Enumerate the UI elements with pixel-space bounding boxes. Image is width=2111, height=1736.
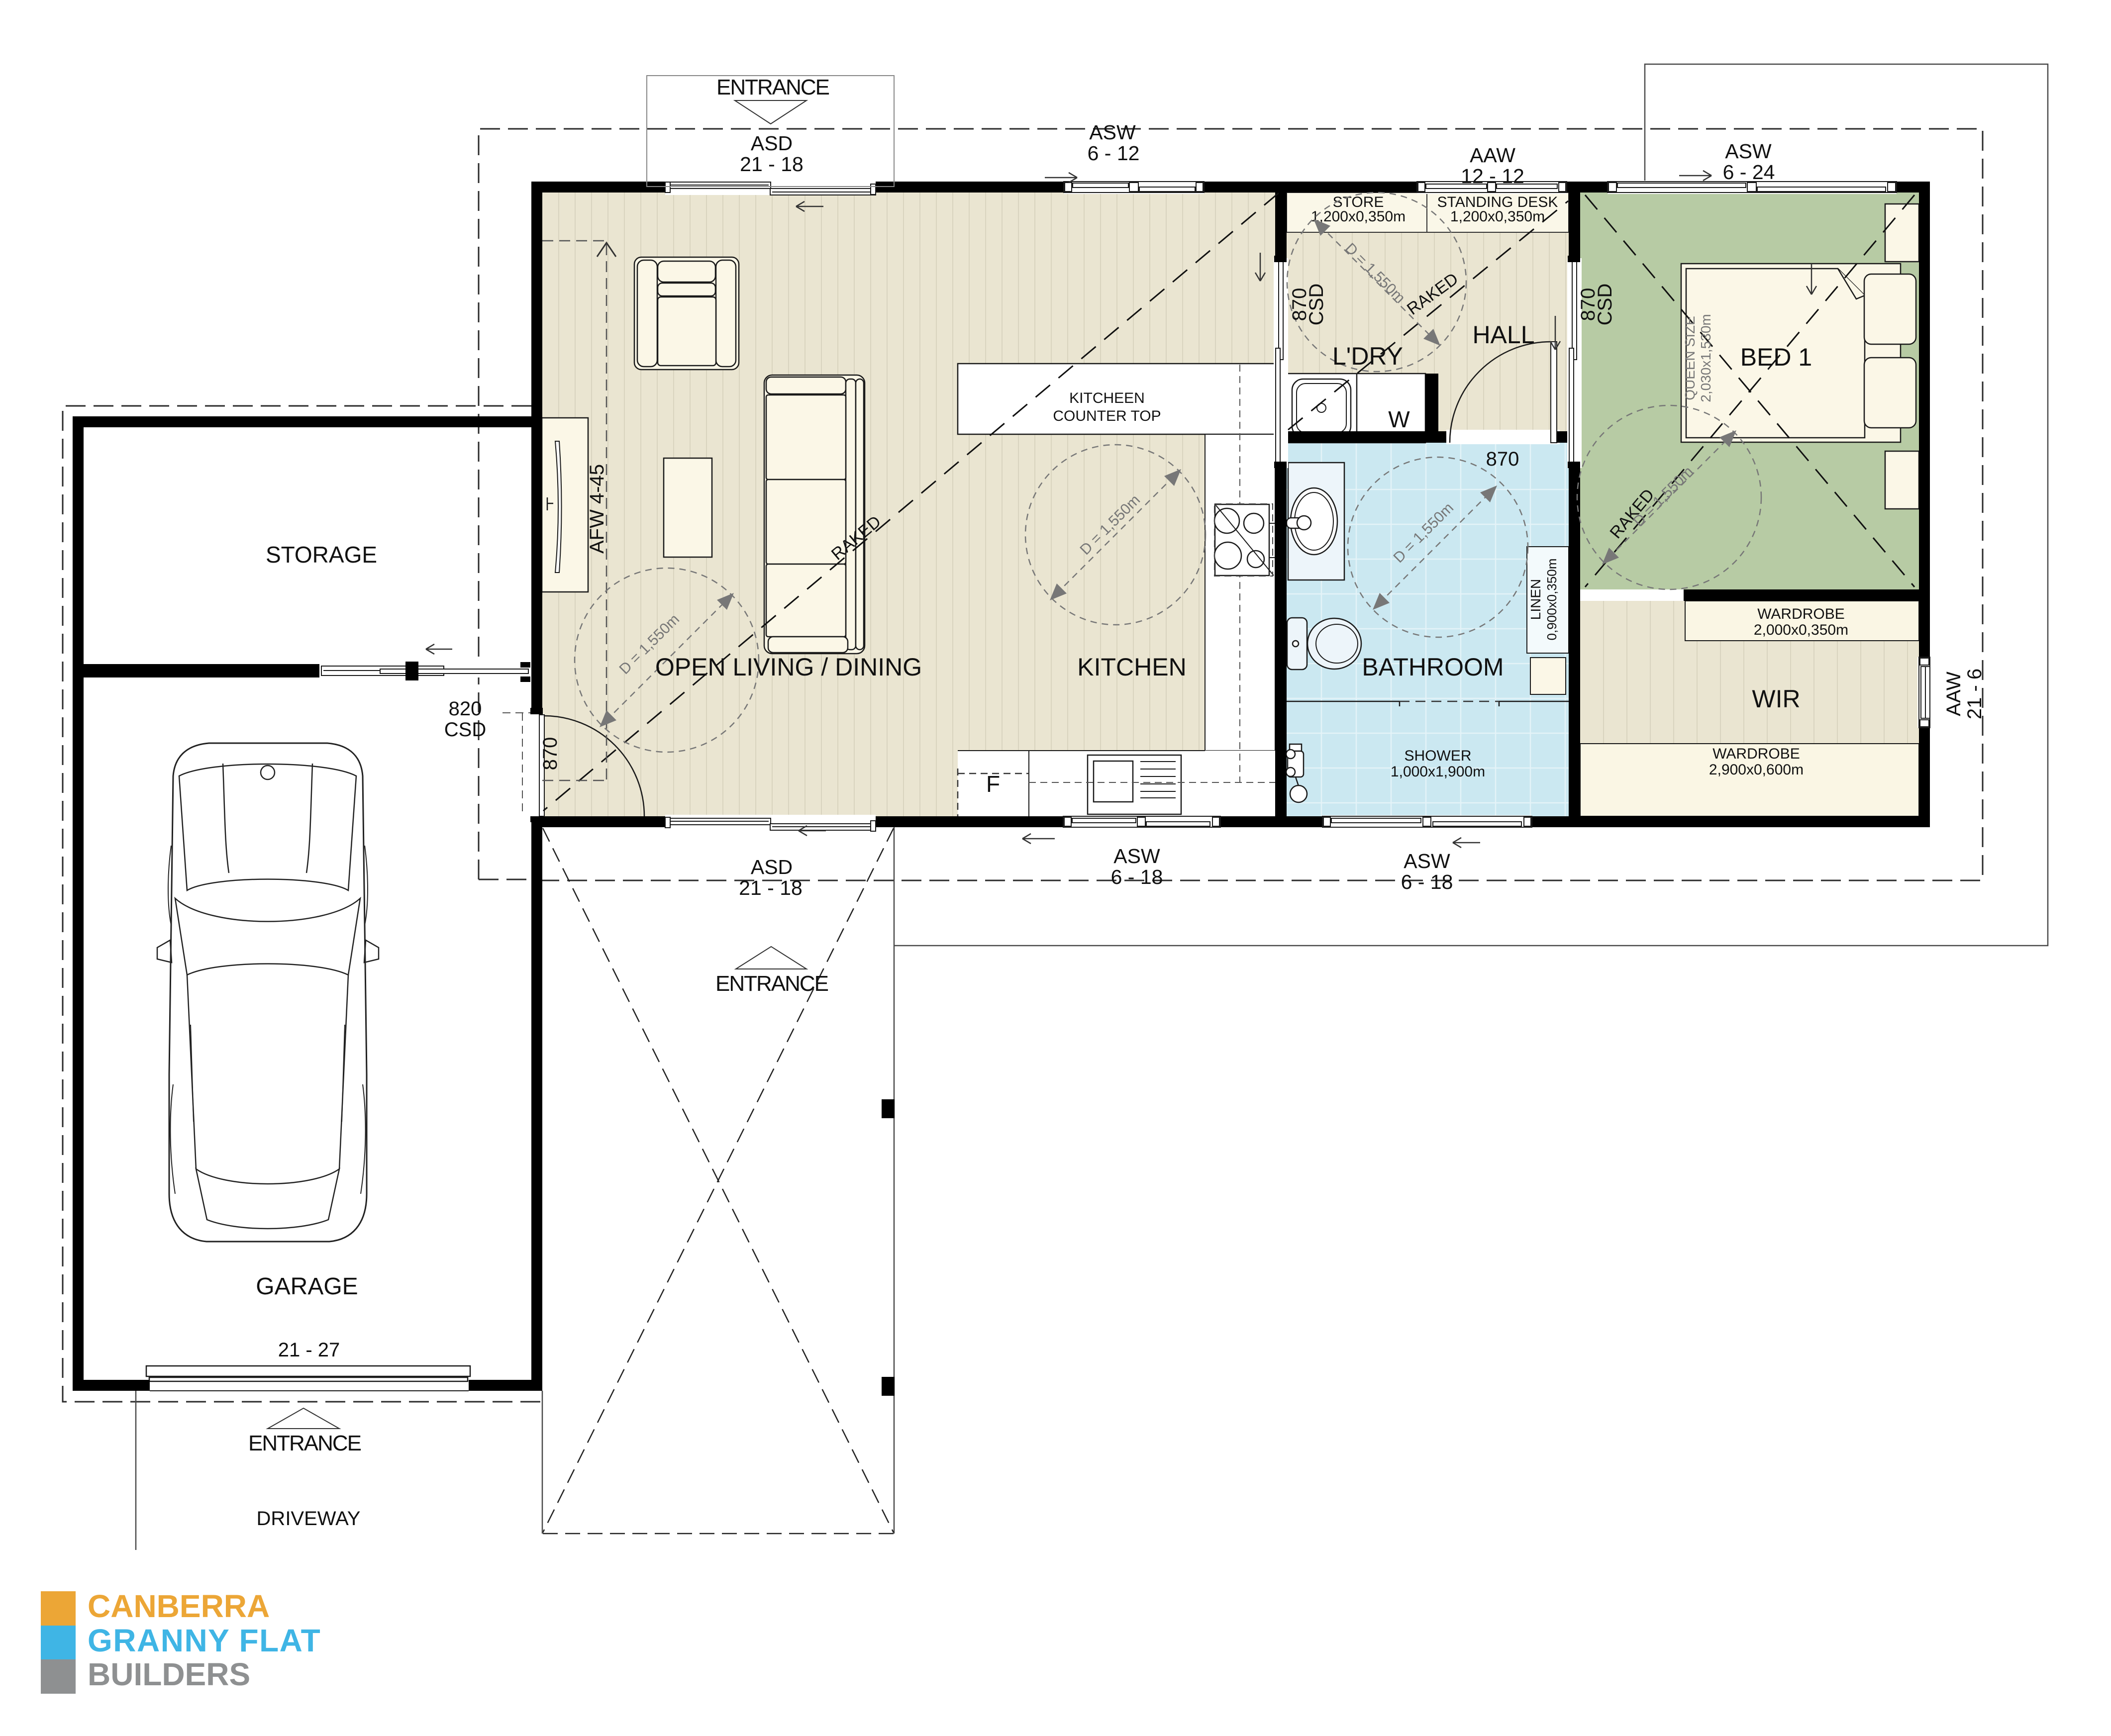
svg-text:12 - 12: 12 - 12 bbox=[1461, 165, 1524, 188]
svg-text:21 - 6: 21 - 6 bbox=[1964, 669, 1986, 719]
svg-text:21 - 18: 21 - 18 bbox=[739, 876, 803, 899]
svg-text:BED 1: BED 1 bbox=[1740, 343, 1812, 371]
svg-text:2,000x0,350m: 2,000x0,350m bbox=[1754, 622, 1848, 638]
svg-text:WIR: WIR bbox=[1752, 685, 1800, 713]
svg-text:WARDROBE: WARDROBE bbox=[1712, 746, 1800, 762]
svg-text:HALL: HALL bbox=[1472, 321, 1534, 349]
svg-text:AAW: AAW bbox=[1943, 672, 1965, 716]
svg-text:21 - 27: 21 - 27 bbox=[278, 1339, 340, 1361]
svg-text:2,030x1,530m: 2,030x1,530m bbox=[1698, 314, 1713, 402]
svg-text:CSD: CSD bbox=[1594, 284, 1616, 325]
svg-text:KITCHEEN: KITCHEEN bbox=[1069, 390, 1145, 406]
svg-text:1,200x0,350m: 1,200x0,350m bbox=[1450, 208, 1545, 225]
svg-text:6 - 18: 6 - 18 bbox=[1111, 866, 1163, 888]
svg-text:21 - 18: 21 - 18 bbox=[740, 153, 804, 176]
svg-text:KITCHEN: KITCHEN bbox=[1077, 653, 1186, 681]
svg-text:CANBERRA: CANBERRA bbox=[88, 1588, 270, 1624]
svg-text:F: F bbox=[986, 771, 1000, 797]
svg-text:QUEEN SIZE: QUEEN SIZE bbox=[1682, 316, 1698, 400]
svg-text:ENTRANCE: ENTRANCE bbox=[716, 75, 829, 99]
svg-text:820: 820 bbox=[449, 698, 482, 720]
svg-text:ASW: ASW bbox=[1725, 140, 1772, 163]
svg-text:STORAGE: STORAGE bbox=[266, 542, 377, 568]
svg-text:6 - 12: 6 - 12 bbox=[1088, 142, 1140, 165]
svg-text:ASD: ASD bbox=[751, 132, 793, 155]
svg-text:GRANNY FLAT: GRANNY FLAT bbox=[88, 1623, 321, 1658]
svg-text:870: 870 bbox=[1486, 448, 1519, 470]
svg-text:OPEN LIVING / DINING: OPEN LIVING / DINING bbox=[655, 653, 922, 681]
svg-text:GARAGE: GARAGE bbox=[256, 1273, 358, 1300]
svg-text:SHOWER: SHOWER bbox=[1405, 748, 1472, 764]
svg-text:CSD: CSD bbox=[444, 719, 486, 741]
svg-text:AAW: AAW bbox=[1470, 144, 1515, 167]
svg-text:COUNTER TOP: COUNTER TOP bbox=[1053, 408, 1161, 424]
svg-text:CSD: CSD bbox=[1306, 284, 1327, 325]
svg-text:BUILDERS: BUILDERS bbox=[88, 1656, 250, 1692]
svg-text:ENTRANCE: ENTRANCE bbox=[715, 971, 828, 996]
svg-text:0,900x0,350m: 0,900x0,350m bbox=[1544, 559, 1559, 641]
svg-text:L'DRY: L'DRY bbox=[1332, 342, 1403, 370]
svg-text:6 - 24: 6 - 24 bbox=[1723, 161, 1775, 184]
svg-text:870: 870 bbox=[539, 737, 561, 771]
svg-text:BATHROOM: BATHROOM bbox=[1362, 653, 1504, 681]
svg-text:1,000x1,900m: 1,000x1,900m bbox=[1391, 764, 1485, 780]
svg-text:ASD: ASD bbox=[751, 856, 793, 878]
svg-text:ASW: ASW bbox=[1089, 121, 1136, 144]
svg-text:6 - 18: 6 - 18 bbox=[1401, 870, 1453, 893]
svg-text:ASW: ASW bbox=[1113, 845, 1160, 868]
svg-text:DRIVEWAY: DRIVEWAY bbox=[257, 1508, 361, 1530]
svg-text:2,900x0,600m: 2,900x0,600m bbox=[1709, 762, 1804, 778]
svg-text:W: W bbox=[1388, 406, 1410, 432]
svg-text:1,200x0,350m: 1,200x0,350m bbox=[1311, 208, 1406, 225]
svg-text:WARDROBE: WARDROBE bbox=[1757, 606, 1845, 622]
svg-text:LINEN: LINEN bbox=[1528, 579, 1543, 620]
svg-text:ENTRANCE: ENTRANCE bbox=[248, 1431, 361, 1455]
svg-text:ASW: ASW bbox=[1404, 850, 1450, 872]
svg-text:AFW 4-45: AFW 4-45 bbox=[586, 464, 608, 554]
